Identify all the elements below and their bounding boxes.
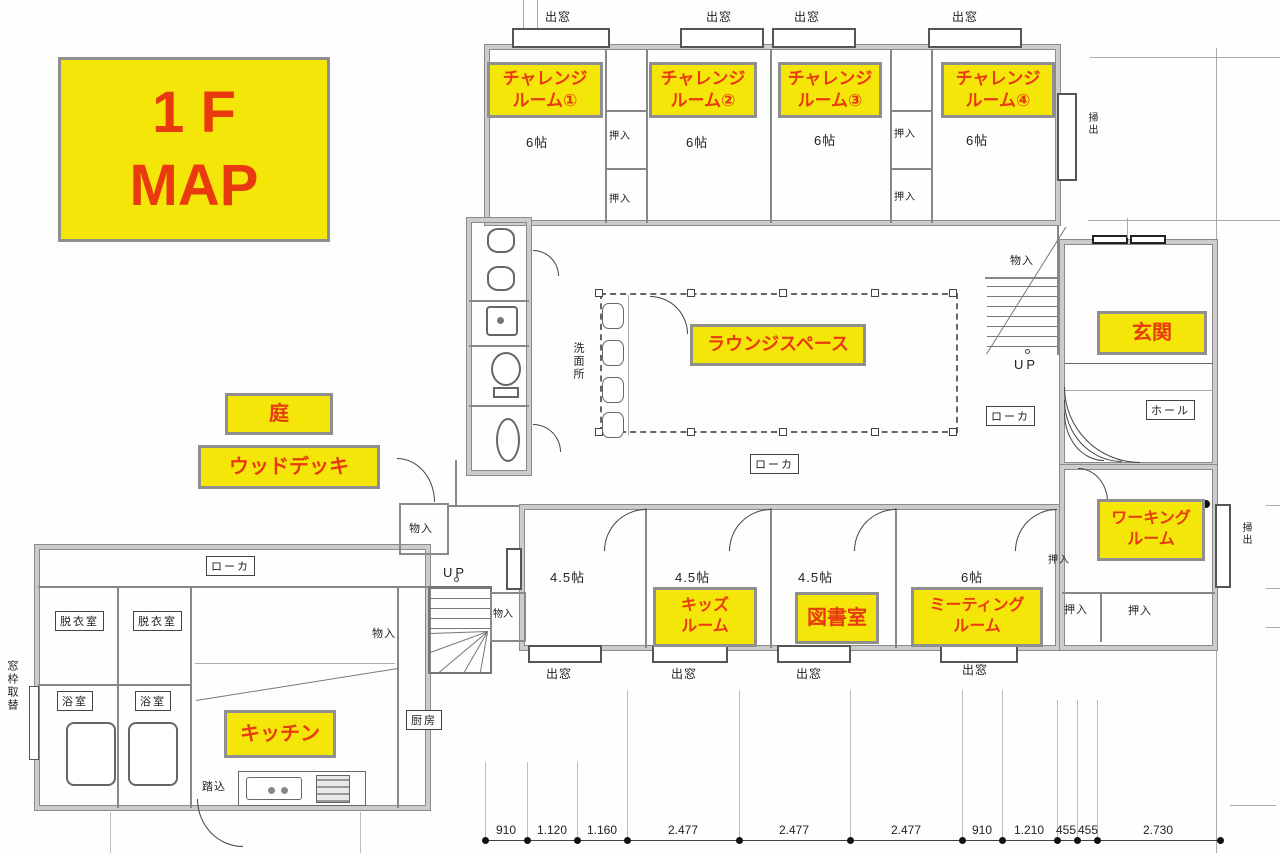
corridor-label: ローカ xyxy=(986,406,1035,426)
grid-tick xyxy=(1230,805,1276,806)
label-line: ラウンジスペース xyxy=(707,333,849,356)
dimension-dot xyxy=(847,837,854,844)
label-line: ミーティング xyxy=(929,596,1024,617)
extension-line xyxy=(1057,700,1058,838)
entrance-door xyxy=(1130,235,1166,244)
wall xyxy=(890,110,933,112)
extension-line xyxy=(527,762,528,838)
dressing-room-label: 脱衣室 xyxy=(55,611,104,631)
bay-window xyxy=(652,645,728,663)
room-label-lounge: ラウンジスペース xyxy=(690,324,866,366)
wall xyxy=(931,49,933,223)
label-line: キッチン xyxy=(240,721,320,747)
bay-window-label: 出窓 xyxy=(962,661,988,678)
wall xyxy=(469,405,529,407)
wall xyxy=(190,588,192,808)
grid-line xyxy=(1090,57,1280,58)
label-line: 庭 xyxy=(269,401,289,427)
dimension-value: 455 xyxy=(1056,823,1076,837)
label-line: チャレンジ xyxy=(788,68,873,90)
extension-line xyxy=(485,762,486,838)
extension-line xyxy=(962,690,963,838)
window-frame-note: 窓枠取替 xyxy=(4,660,20,752)
room-size-label: 6帖 xyxy=(961,567,983,586)
bay-window-label: 出窓 xyxy=(796,665,822,682)
room-label-challenge-4: チャレンジ ルーム④ xyxy=(941,62,1055,118)
room-size-label: 6帖 xyxy=(814,130,836,149)
door-arc xyxy=(533,424,561,452)
label-line: チャレンジ xyxy=(503,68,588,90)
wall xyxy=(38,684,192,686)
sweep-window xyxy=(1057,93,1077,181)
room-label-challenge-3: チャレンジ ルーム③ xyxy=(778,62,882,118)
central-stairs xyxy=(428,586,492,674)
extension-line xyxy=(1077,700,1078,838)
wall xyxy=(38,586,428,588)
bay-window xyxy=(528,645,602,663)
dimension-dot xyxy=(1054,837,1061,844)
label-line: ローカ xyxy=(991,408,1030,424)
label-line: ローカ xyxy=(755,456,794,472)
wall xyxy=(1062,592,1215,594)
dressing-room-label: 脱衣室 xyxy=(133,611,182,631)
extension-line xyxy=(360,812,361,853)
bathroom-label: 浴室 xyxy=(57,691,93,711)
dimension-dot xyxy=(624,837,631,844)
counter-line xyxy=(628,295,629,435)
dimension-dot xyxy=(999,837,1006,844)
bay-window xyxy=(506,548,522,590)
dimension-value: 910 xyxy=(972,823,992,837)
label-line: ルーム③ xyxy=(798,90,863,112)
closet-label: 押入 xyxy=(894,188,916,203)
door-arc xyxy=(197,799,243,847)
room-label-meeting: ミーティング ルーム xyxy=(911,587,1043,647)
dimension-value: 910 xyxy=(496,823,516,837)
room-size-label: 6帖 xyxy=(526,132,548,151)
floor-title-line1: 1 F xyxy=(152,77,236,150)
bay-window-label: 出窓 xyxy=(794,8,820,25)
storage-label: 物入 xyxy=(372,625,396,641)
label-line: ルーム② xyxy=(671,90,736,112)
wall xyxy=(469,300,529,302)
door-arc xyxy=(397,458,435,502)
post xyxy=(949,428,957,436)
hall-label: ホール xyxy=(1146,400,1195,420)
counter-line xyxy=(195,663,395,664)
bay-window-label: 出窓 xyxy=(706,8,732,25)
wash-basin xyxy=(602,340,624,366)
extension-line xyxy=(577,762,578,838)
step-line xyxy=(1065,363,1213,364)
closet-label: 押入 xyxy=(609,127,631,142)
closet-label: 押入 xyxy=(1128,602,1152,618)
grid-line xyxy=(1088,220,1280,221)
extension-line xyxy=(1097,700,1098,838)
post xyxy=(871,289,879,297)
dimension-dot xyxy=(1217,837,1224,844)
room-label-library: 図書室 xyxy=(795,592,879,644)
urinal xyxy=(487,266,515,291)
label-line: 浴室 xyxy=(62,693,88,709)
bay-window-label: 出窓 xyxy=(671,665,697,682)
wall xyxy=(449,505,521,507)
floor-plan-1f: 1 F MAP 出窓 出窓 出窓 出窓 掃出 押入 押入 押入 押入 6帖 6帖… xyxy=(0,0,1280,853)
dimension-value: 1.120 xyxy=(537,823,567,837)
window xyxy=(29,686,39,760)
closet-label: 押入 xyxy=(894,125,916,140)
corridor-label: ローカ xyxy=(750,454,799,474)
storage-label: 物入 xyxy=(1010,252,1034,268)
corridor-label: ローカ xyxy=(206,556,255,576)
dimension-dot xyxy=(736,837,743,844)
room-label-kitchen: キッチン xyxy=(224,710,336,758)
post xyxy=(687,428,695,436)
extension-line xyxy=(850,690,851,838)
label-line: 玄関 xyxy=(1132,320,1172,346)
grid-tick xyxy=(1266,588,1280,589)
dimension-value: 1.210 xyxy=(1014,823,1044,837)
floor-title-line2: MAP xyxy=(130,150,259,223)
room-label-challenge-1: チャレンジ ルーム① xyxy=(487,62,603,118)
toilet xyxy=(491,352,521,386)
area-label-garden: 庭 xyxy=(225,393,333,435)
faucet xyxy=(268,787,275,794)
label-line: ルーム xyxy=(681,617,729,638)
dimension-value: 2.477 xyxy=(668,823,698,837)
wall xyxy=(469,345,529,347)
bathroom-label: 浴室 xyxy=(135,691,171,711)
room-size-label: 4.5帖 xyxy=(675,567,710,586)
label-line: ウッドデッキ xyxy=(229,454,349,480)
bathtub xyxy=(128,722,178,786)
closet-label: 押入 xyxy=(1064,601,1088,617)
wall xyxy=(397,588,399,808)
dimension-dot xyxy=(959,837,966,844)
bathtub xyxy=(66,722,116,786)
dimension-dot xyxy=(1074,837,1081,844)
galley-label: 厨房 xyxy=(406,710,442,730)
dimension-value: 1.160 xyxy=(587,823,617,837)
dimension-dot xyxy=(1094,837,1101,844)
sweep-window-label: 掃出 xyxy=(1084,112,1099,168)
room-label-challenge-2: チャレンジ ルーム② xyxy=(649,62,757,118)
storage-label: 物入 xyxy=(409,520,433,536)
closet-label: 押入 xyxy=(609,190,631,205)
room-size-label: 6帖 xyxy=(966,130,988,149)
stove xyxy=(316,775,350,803)
up-marker xyxy=(454,577,459,582)
label-line: チャレンジ xyxy=(956,68,1041,90)
wall xyxy=(646,49,648,223)
wall xyxy=(1057,225,1059,355)
wall xyxy=(890,168,933,170)
wall xyxy=(605,110,648,112)
label-line: 厨房 xyxy=(411,712,437,728)
extension-line xyxy=(627,690,628,838)
closet-label: 押入 xyxy=(1048,551,1070,566)
post xyxy=(871,428,879,436)
urinal xyxy=(487,228,515,253)
room-size-label: 4.5帖 xyxy=(798,567,833,586)
up-marker xyxy=(1025,349,1030,354)
grid-tick xyxy=(1266,627,1280,628)
wash-basin xyxy=(602,303,624,329)
dimension-value: 455 xyxy=(1078,823,1098,837)
door-arc xyxy=(533,250,559,276)
wash-basin xyxy=(602,377,624,403)
dimension-value: 2.477 xyxy=(779,823,809,837)
faucet xyxy=(281,787,288,794)
post xyxy=(687,289,695,297)
stair-treads xyxy=(430,588,490,632)
label-line: 脱衣室 xyxy=(60,613,99,629)
wall xyxy=(117,588,119,808)
floor-title: 1 F MAP xyxy=(58,57,330,242)
wall xyxy=(455,460,457,506)
stair-fan-line xyxy=(474,632,488,674)
dimension-dot xyxy=(482,837,489,844)
room-label-working: ワーキング ルーム xyxy=(1097,499,1205,561)
toilet xyxy=(496,418,520,462)
label-line: 図書室 xyxy=(807,605,867,631)
storage-label: 物入 xyxy=(493,605,513,620)
post xyxy=(779,289,787,297)
extension-line xyxy=(110,812,111,853)
dimension-dot xyxy=(574,837,581,844)
extension-line xyxy=(739,690,740,838)
post xyxy=(595,289,603,297)
stair-fan-line xyxy=(430,631,488,674)
bay-window xyxy=(928,28,1022,48)
wall xyxy=(985,277,1057,279)
sweep-window xyxy=(1215,504,1231,588)
dimension-value: 2.477 xyxy=(891,823,921,837)
bay-window xyxy=(512,28,610,48)
sink-drain xyxy=(497,317,504,324)
wall xyxy=(605,49,607,223)
wall xyxy=(770,49,772,223)
dimension-value: 2.730 xyxy=(1143,823,1173,837)
room-size-label: 4.5帖 xyxy=(550,567,585,586)
label-line: 脱衣室 xyxy=(138,613,177,629)
label-line: ワーキング xyxy=(1111,509,1191,530)
label-line: ルーム① xyxy=(513,90,578,112)
door-center-tick xyxy=(1127,218,1128,238)
bay-window-label: 出窓 xyxy=(546,665,572,682)
bay-window xyxy=(680,28,764,48)
label-line: ホール xyxy=(1151,402,1190,418)
extension-line xyxy=(1002,690,1003,838)
label-line: ローカ xyxy=(211,558,250,574)
up-label: UP xyxy=(1014,357,1038,372)
label-line: ルーム④ xyxy=(966,90,1031,112)
post xyxy=(779,428,787,436)
sweep-window-label: 掃出 xyxy=(1238,522,1253,574)
room-size-label: 6帖 xyxy=(686,132,708,151)
bay-window xyxy=(772,28,856,48)
bay-window-label: 出窓 xyxy=(545,8,571,25)
label-line: 浴室 xyxy=(140,693,166,709)
room-label-kids: キッズ ルーム xyxy=(653,587,757,647)
label-line: ルーム xyxy=(1127,530,1175,551)
wall xyxy=(1100,594,1102,642)
grid-tick xyxy=(1266,505,1280,506)
wall xyxy=(605,168,648,170)
washroom-label: 洗面所 xyxy=(570,342,586,400)
label-line: ルーム xyxy=(953,617,1001,638)
dimension-dot xyxy=(524,837,531,844)
bay-window xyxy=(777,645,851,663)
wall xyxy=(890,49,892,223)
bay-window-label: 出窓 xyxy=(952,8,978,25)
label-line: キッズ xyxy=(681,596,729,617)
post xyxy=(949,289,957,297)
wash-basin xyxy=(602,412,624,438)
entrance-door xyxy=(1092,235,1128,244)
label-line: チャレンジ xyxy=(661,68,746,90)
entry-step-label: 踏込 xyxy=(202,778,226,794)
room-label-entrance: 玄関 xyxy=(1097,311,1207,355)
toilet-tank xyxy=(493,387,519,398)
area-label-wood-deck: ウッドデッキ xyxy=(198,445,380,489)
